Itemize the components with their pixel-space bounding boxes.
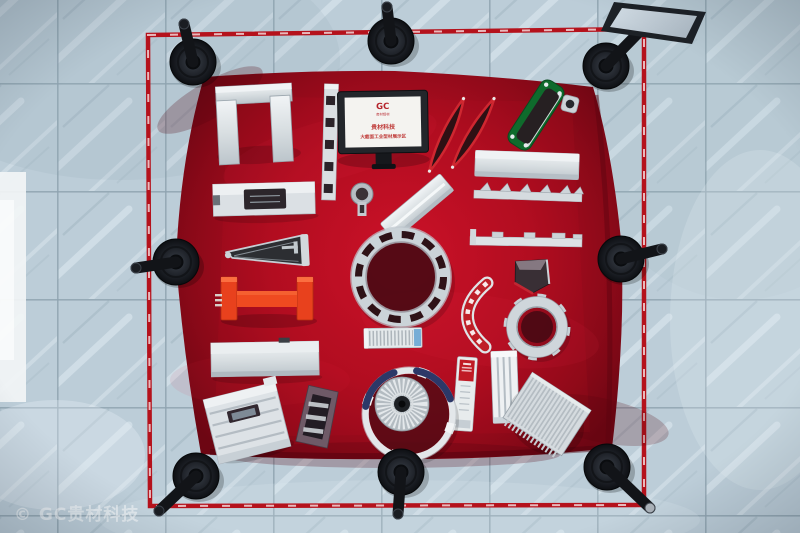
vignette-overlay xyxy=(0,0,800,533)
exhibition-photo: GC 贵材铝材 贵材科技 大截面工业型材展示区 xyxy=(0,0,800,533)
scene-canvas: GC 贵材铝材 贵材科技 大截面工业型材展示区 xyxy=(0,0,800,533)
